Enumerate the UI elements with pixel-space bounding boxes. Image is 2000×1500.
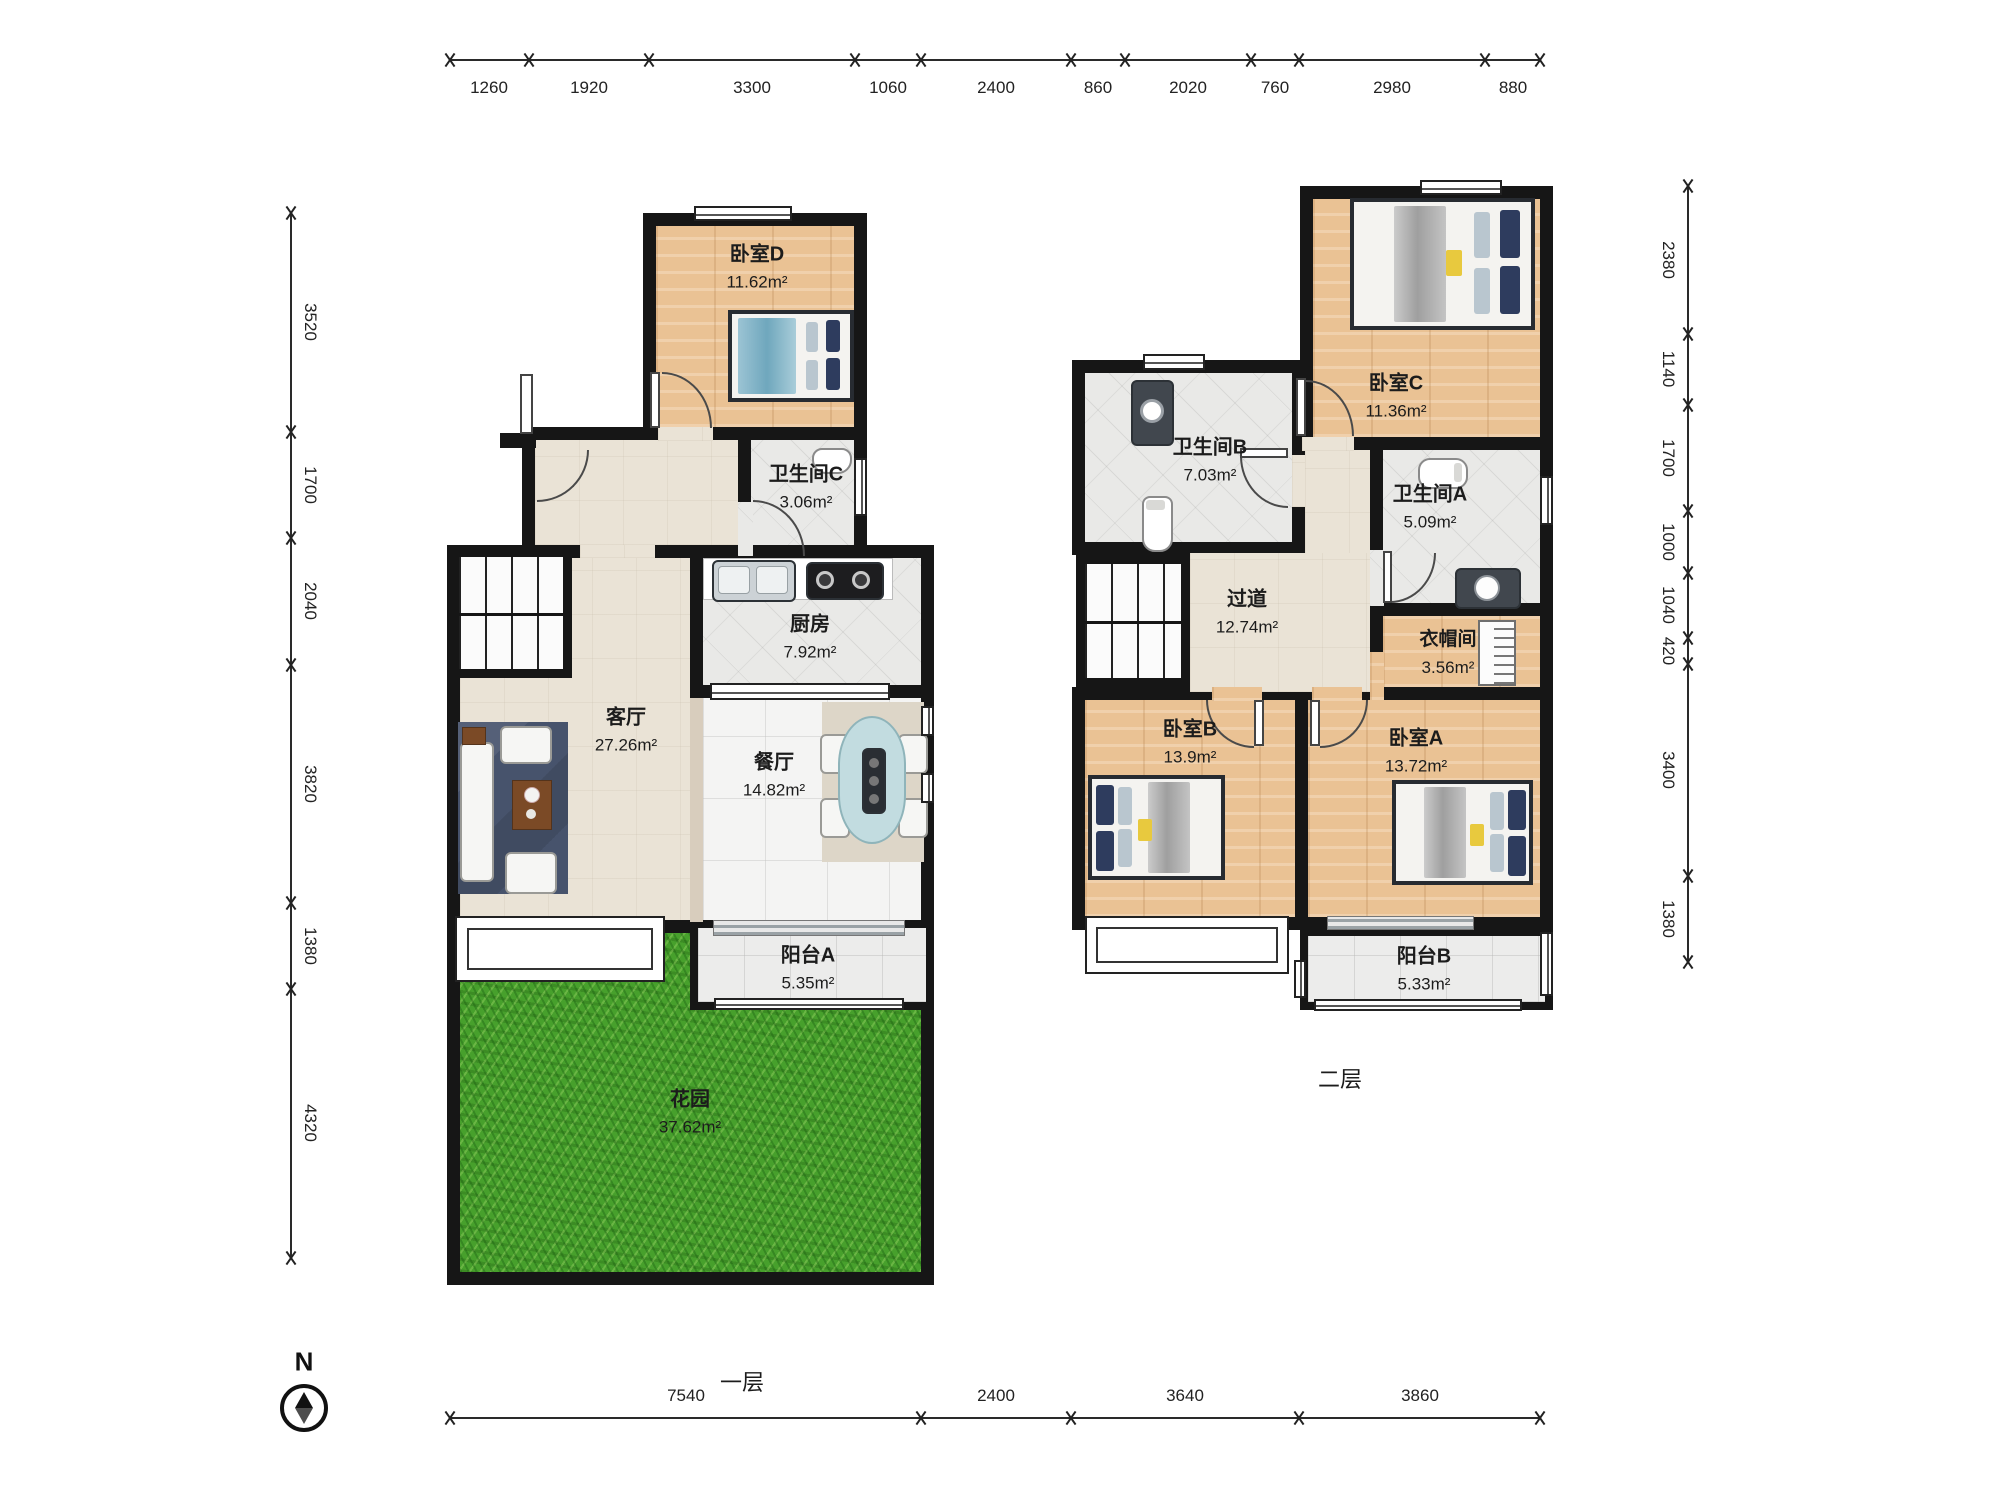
dim-right-3: 1000 — [1658, 523, 1678, 561]
f2-stairs-icon — [1076, 555, 1190, 687]
dimension-bottom-line — [450, 1417, 1540, 1419]
dim-right-1: 1140 — [1658, 351, 1678, 388]
room-area: 14.82m² — [743, 777, 805, 803]
f2-bedroom-c-window — [1420, 180, 1502, 195]
floor2-tag: 二层 — [1318, 1062, 1362, 1094]
f1-kitchen-stove-icon — [806, 562, 884, 600]
f1-living-label: 客厅 27.26m² — [595, 702, 657, 758]
f1-balcony-a-label: 阳台A 5.35m² — [781, 940, 835, 996]
dim-left-3: 3820 — [300, 765, 320, 803]
f2-balcony-b-label: 阳台B 5.33m² — [1397, 941, 1451, 997]
f2-wardrobe-icon — [1478, 620, 1516, 686]
room-area: 3.06m² — [769, 489, 843, 515]
f2-bathroom-a-door-leaf — [1383, 551, 1392, 603]
dim-right-4: 1040 — [1658, 586, 1678, 624]
f2-bathroom-b-door-gap — [1292, 455, 1305, 507]
f2-bedroom-b-bay-window — [1085, 916, 1289, 974]
room-name: 衣帽间 — [1419, 629, 1476, 650]
dim-top-8: 2980 — [1373, 78, 1411, 98]
f1-kitchen-label: 厨房 7.92m² — [784, 609, 837, 665]
f2-bedroom-a-bed — [1392, 780, 1533, 885]
dim-bottom-3: 3860 — [1401, 1386, 1439, 1406]
f2-bedroom-c-label: 卧室C 11.36m² — [1365, 368, 1426, 424]
f1-dining-table-console — [862, 748, 886, 814]
room-name: 客厅 — [606, 706, 646, 728]
f2-bedroom-b-door-gap — [1212, 687, 1262, 701]
f1-balcony-a-sliding-door — [713, 920, 905, 936]
room-name: 卧室D — [730, 243, 784, 265]
dim-top-9: 880 — [1499, 78, 1527, 98]
floor1-tag: 一层 — [720, 1365, 764, 1397]
room-name: 卫生间B — [1173, 436, 1247, 458]
f1-dining-window-2 — [921, 773, 934, 803]
compass-needle-south — [295, 1408, 313, 1424]
north-label: N — [295, 1347, 314, 1378]
f2-bedroom-a-door-leaf — [1310, 700, 1320, 746]
dim-top-2: 3300 — [733, 78, 771, 98]
f1-armchair-top-icon — [500, 726, 552, 764]
room-area: 5.09m² — [1393, 509, 1467, 535]
f2-balcony-b-window — [1314, 999, 1522, 1011]
f2-hallway-label: 过道 12.74m² — [1216, 584, 1278, 640]
dim-top-1: 1920 — [570, 78, 608, 98]
room-name: 卧室B — [1163, 718, 1217, 740]
dim-right-0: 2380 — [1658, 241, 1678, 279]
room-name: 花园 — [670, 1088, 710, 1110]
room-name: 阳台A — [781, 944, 835, 966]
room-area: 37.62m² — [659, 1114, 721, 1140]
dim-left-4: 1380 — [300, 927, 320, 965]
f2-bathroom-a-label: 卫生间A 5.09m² — [1393, 479, 1467, 535]
f2-bathroom-b-label: 卫生间B 7.03m² — [1173, 432, 1247, 488]
room-area: 11.62m² — [726, 269, 787, 295]
dimension-top-line — [450, 59, 1540, 61]
dim-top-5: 860 — [1084, 78, 1112, 98]
f2-bedroom-c-door-gap — [1302, 437, 1354, 451]
f1-entry-wall-stub — [500, 433, 536, 448]
room-name: 餐厅 — [754, 751, 794, 773]
f1-coffee-table-icon — [512, 780, 552, 830]
f1-bedroom-d-door-leaf — [650, 372, 660, 428]
dim-top-4: 2400 — [977, 78, 1015, 98]
f1-kitchen-sink-icon — [712, 560, 796, 602]
dim-right-7: 1380 — [1658, 900, 1678, 938]
f1-living-bay-window — [455, 916, 665, 982]
f1-side-table-icon — [462, 727, 486, 745]
f1-bedroom-d-label: 卧室D 11.62m² — [726, 239, 787, 295]
room-name: 卫生间A — [1393, 483, 1467, 505]
f2-bedroom-c-door-leaf — [1296, 378, 1306, 436]
room-name: 厨房 — [790, 613, 830, 635]
f1-bedroom-d-window — [694, 206, 792, 221]
f1-sofa-icon — [460, 742, 494, 882]
f1-bathroom-c-label: 卫生间C 3.06m² — [769, 459, 843, 515]
f2-bedroom-a-sliding-door — [1327, 916, 1474, 930]
dim-top-0: 1260 — [470, 78, 508, 98]
f1-bathroom-c-door-gap — [738, 502, 753, 556]
room-area: 5.35m² — [781, 970, 835, 996]
f2-balcony-b-left-window — [1294, 960, 1306, 998]
f2-hallway-upper — [1305, 450, 1370, 557]
room-area: 5.33m² — [1397, 971, 1451, 997]
f2-cloakroom-opening — [1370, 652, 1384, 700]
dim-bottom-1: 2400 — [977, 1386, 1015, 1406]
f1-entry-door-leaf — [520, 374, 533, 434]
f1-bedroom-d-door-gap — [658, 427, 713, 441]
dim-left-0: 3520 — [300, 303, 320, 341]
dim-left-2: 2040 — [300, 582, 320, 620]
room-area: 12.74m² — [1216, 614, 1278, 640]
room-area: 13.9m² — [1163, 744, 1217, 770]
dim-right-2: 1700 — [1658, 439, 1678, 477]
room-area: 11.36m² — [1365, 398, 1426, 424]
dim-right-5: 420 — [1658, 637, 1678, 665]
floorplan-canvas: 卧室D 11.62m² 卫生间C 3.06m² 厨房 7.92m² 客厅 27.… — [0, 0, 2000, 1500]
dim-bottom-2: 3640 — [1166, 1386, 1204, 1406]
f2-bedroom-a-label: 卧室A 13.72m² — [1385, 723, 1447, 779]
f2-bathroom-a-window — [1540, 476, 1553, 525]
room-name: 卧室C — [1369, 372, 1423, 394]
f2-washing-machine-icon — [1131, 380, 1174, 446]
room-area: 7.03m² — [1173, 462, 1247, 488]
dimension-left-line — [290, 213, 292, 1258]
room-area: 7.92m² — [784, 639, 837, 665]
f2-balcony-b-right-window — [1540, 932, 1553, 996]
f2-bedroom-a-door-gap — [1312, 687, 1362, 701]
f1-hall-living-opening — [580, 545, 655, 558]
f2-bathroom-b-toilet-icon — [1142, 496, 1173, 552]
compass-needle-north — [295, 1392, 313, 1408]
f1-armchair-bottom-icon — [505, 852, 557, 894]
room-area: 3.56m² — [1419, 655, 1476, 681]
f1-balcony-a-window — [714, 998, 904, 1010]
dim-top-7: 760 — [1261, 78, 1289, 98]
room-name: 卧室A — [1389, 727, 1443, 749]
room-name: 阳台B — [1397, 945, 1451, 967]
f2-bathroom-b-window — [1143, 354, 1205, 370]
room-area: 13.72m² — [1385, 753, 1447, 779]
dim-top-6: 2020 — [1169, 78, 1207, 98]
dim-left-5: 4320 — [300, 1104, 320, 1142]
f2-bathroom-a-door-gap — [1370, 550, 1384, 606]
f2-cloakroom-label: 衣帽间 3.56m² — [1419, 626, 1476, 680]
f2-bedroom-b-bed — [1088, 775, 1225, 880]
f1-living-dining-divider — [690, 698, 703, 922]
f2-bedroom-b-label: 卧室B 13.9m² — [1163, 714, 1217, 770]
f1-kitchen-pass-window — [710, 683, 890, 700]
dim-left-1: 1700 — [300, 466, 320, 504]
f1-stairs-icon — [450, 548, 572, 678]
f2-bathroom-a-sink-icon — [1455, 568, 1521, 609]
f1-bathroom-c-window — [854, 458, 867, 516]
room-name: 卫生间C — [769, 463, 843, 485]
dim-top-3: 1060 — [869, 78, 907, 98]
dim-right-6: 3400 — [1658, 751, 1678, 789]
f2-bedroom-b-door-leaf — [1254, 700, 1264, 746]
f1-garden-label: 花园 37.62m² — [659, 1084, 721, 1140]
f1-dining-label: 餐厅 14.82m² — [743, 747, 805, 803]
dim-bottom-0: 7540 — [667, 1386, 705, 1406]
room-name: 过道 — [1227, 588, 1267, 610]
f1-dining-window-1 — [921, 706, 934, 736]
f2-bedroom-c-bed — [1350, 198, 1535, 330]
f1-bedroom-d-bed — [728, 310, 854, 402]
room-area: 27.26m² — [595, 732, 657, 758]
